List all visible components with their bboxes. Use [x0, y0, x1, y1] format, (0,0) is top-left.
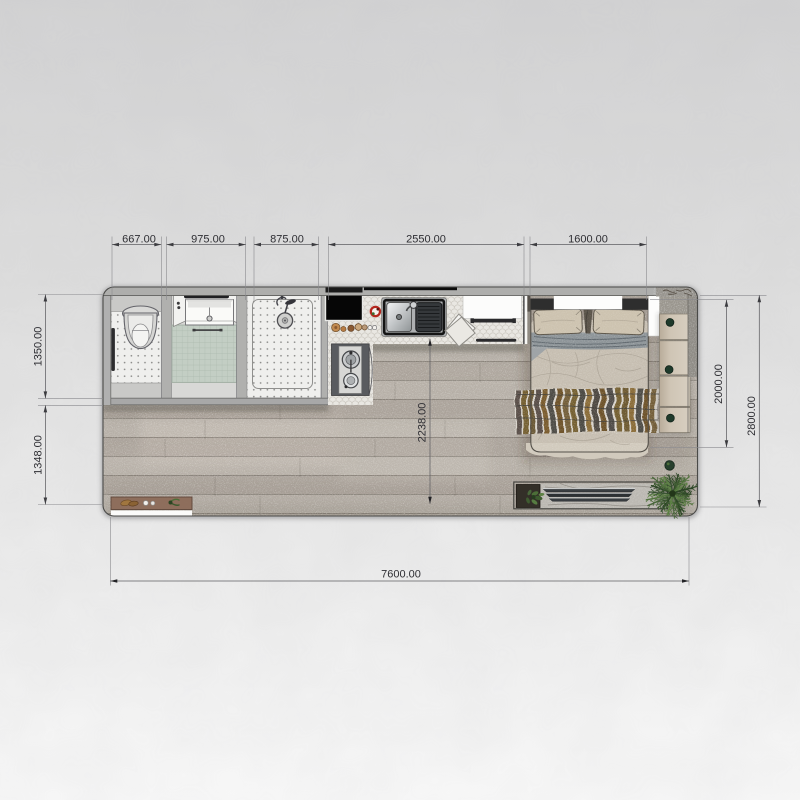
- svg-text:1350.00: 1350.00: [33, 327, 45, 367]
- svg-text:2000.00: 2000.00: [713, 364, 725, 404]
- svg-text:975.00: 975.00: [191, 234, 225, 246]
- svg-text:7600.00: 7600.00: [381, 569, 421, 581]
- svg-text:1348.00: 1348.00: [33, 435, 45, 475]
- svg-text:2550.00: 2550.00: [406, 234, 446, 246]
- svg-text:875.00: 875.00: [270, 234, 304, 246]
- svg-text:2238.00: 2238.00: [417, 403, 429, 443]
- svg-text:1600.00: 1600.00: [568, 234, 608, 246]
- svg-text:2800.00: 2800.00: [746, 396, 758, 436]
- svg-text:667.00: 667.00: [122, 234, 156, 246]
